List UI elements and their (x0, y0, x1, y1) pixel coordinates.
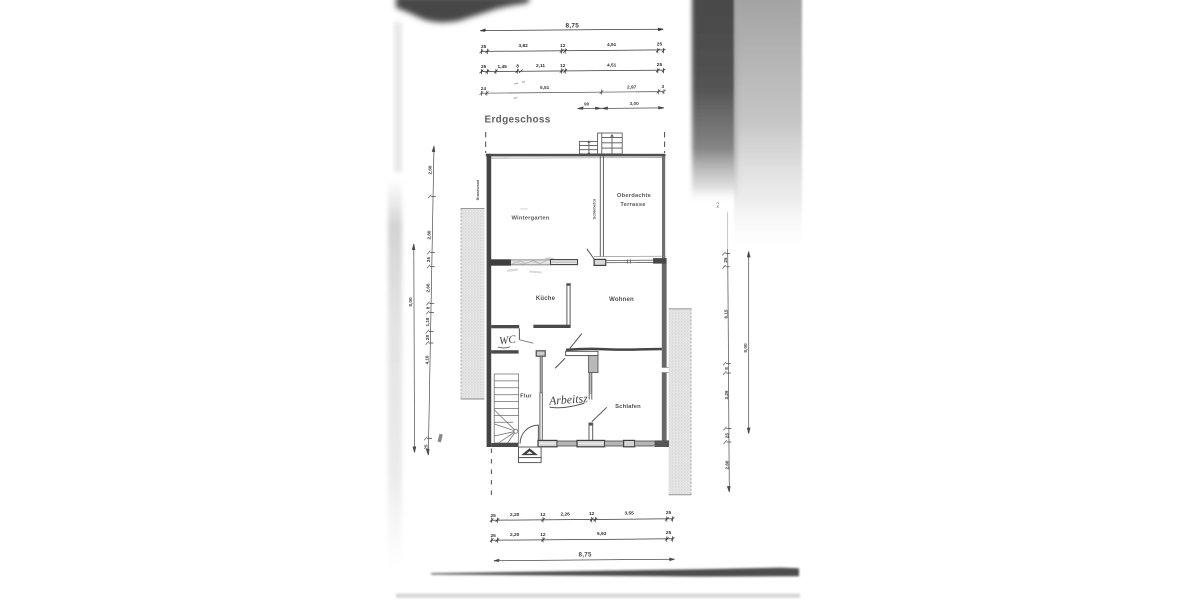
svg-text:2,60: 2,60 (428, 165, 433, 174)
svg-text:Schlafen: Schlafen (615, 404, 641, 410)
svg-text:4,10: 4,10 (424, 355, 429, 364)
svg-text:1,18: 1,18 (425, 317, 430, 326)
svg-text:2,26: 2,26 (561, 511, 571, 517)
svg-text:12: 12 (540, 512, 546, 518)
svg-text:25: 25 (491, 533, 497, 539)
svg-text:Flur: Flur (520, 394, 532, 400)
svg-text:2,97: 2,97 (627, 84, 637, 90)
svg-text:5,93: 5,93 (597, 531, 607, 537)
svg-text:4,51: 4,51 (607, 62, 617, 68)
svg-text:25: 25 (657, 62, 663, 68)
svg-text:25: 25 (424, 444, 429, 450)
svg-text:12: 12 (560, 43, 566, 49)
svg-text:28: 28 (425, 335, 430, 341)
svg-text:8,00: 8,00 (743, 343, 749, 353)
svg-text:25: 25 (657, 42, 663, 48)
svg-text:8: 8 (724, 367, 729, 370)
svg-text:3,55: 3,55 (625, 510, 635, 516)
svg-text:Terrasse: Terrasse (620, 202, 646, 208)
svg-text:8,00: 8,00 (408, 297, 414, 307)
svg-text:Küche: Küche (536, 296, 556, 302)
svg-text:90: 90 (584, 101, 590, 107)
svg-text:2,20: 2,20 (510, 532, 520, 538)
svg-text:8,75: 8,75 (579, 551, 593, 558)
svg-text:25: 25 (666, 510, 672, 516)
svg-text:24: 24 (481, 86, 487, 92)
svg-text:Erdgeschoss: Erdgeschoss (485, 115, 551, 126)
svg-text:6,15: 6,15 (723, 309, 728, 318)
svg-text:8,75: 8,75 (566, 23, 580, 30)
svg-text:12: 12 (560, 63, 566, 69)
svg-text:Oberdachte: Oberdachte (617, 193, 652, 199)
svg-text:Brandwand: Brandwand (476, 179, 480, 200)
svg-text:Schiebetür: Schiebetür (591, 198, 596, 219)
svg-text:ln 2: ln 2 (716, 202, 720, 208)
svg-text:3,00: 3,00 (630, 101, 640, 107)
svg-text:5,51: 5,51 (540, 85, 550, 91)
svg-text:4,51: 4,51 (607, 42, 617, 48)
svg-text:3,29: 3,29 (724, 390, 729, 399)
svg-text:2,60: 2,60 (725, 460, 730, 469)
svg-text:2,11: 2,11 (536, 63, 545, 69)
svg-text:25: 25 (491, 513, 497, 519)
svg-text:8: 8 (425, 306, 430, 309)
svg-text:12: 12 (540, 532, 546, 538)
svg-text:8: 8 (516, 64, 519, 70)
svg-text:Wintergarten: Wintergarten (511, 216, 549, 222)
svg-text:3,82: 3,82 (519, 43, 529, 49)
svg-text:25: 25 (723, 257, 728, 263)
svg-text:Wohnen: Wohnen (609, 297, 634, 303)
svg-text:2,60: 2,60 (426, 283, 431, 292)
svg-text:2,80: 2,80 (427, 230, 432, 239)
svg-text:WC: WC (499, 333, 517, 347)
svg-text:Arbeitsz: Arbeitsz (548, 391, 589, 408)
svg-text:2,20: 2,20 (510, 512, 520, 518)
svg-text:25: 25 (426, 257, 431, 263)
svg-text:3: 3 (662, 84, 665, 90)
svg-text:25: 25 (724, 433, 729, 439)
svg-text:1,45: 1,45 (498, 64, 508, 70)
svg-text:25: 25 (481, 44, 487, 50)
svg-text:25: 25 (481, 64, 487, 70)
svg-text:25: 25 (666, 530, 672, 536)
svg-text:12: 12 (589, 511, 595, 517)
